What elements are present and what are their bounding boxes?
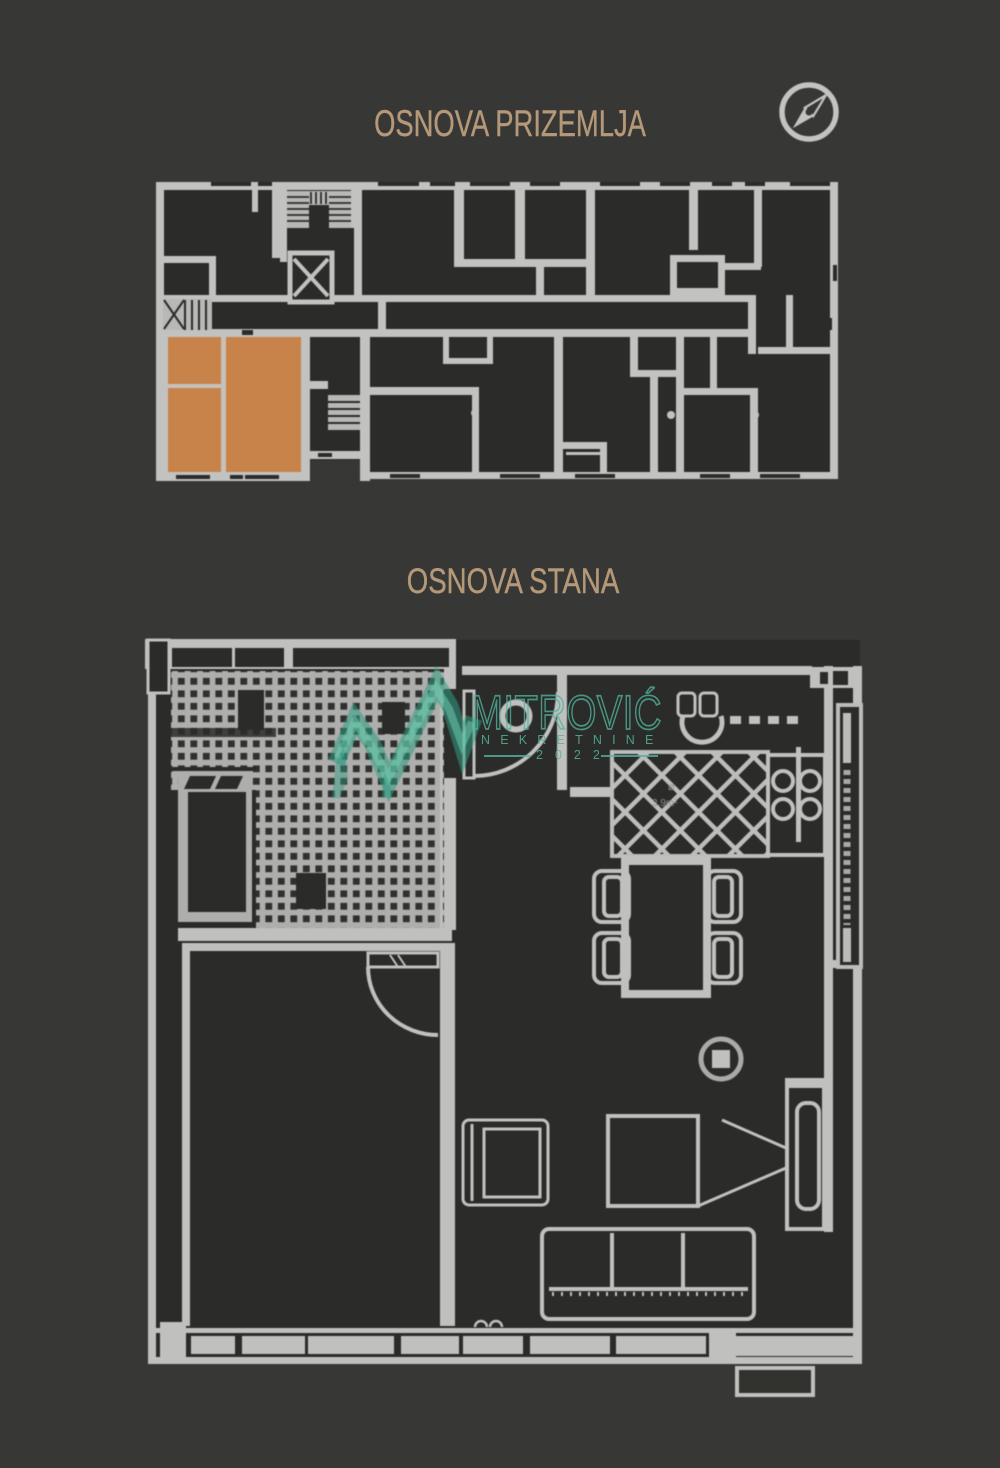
svg-text:3.9m²: 3.9m² xyxy=(652,798,678,809)
svg-text:⌀: ⌀ xyxy=(668,781,675,793)
